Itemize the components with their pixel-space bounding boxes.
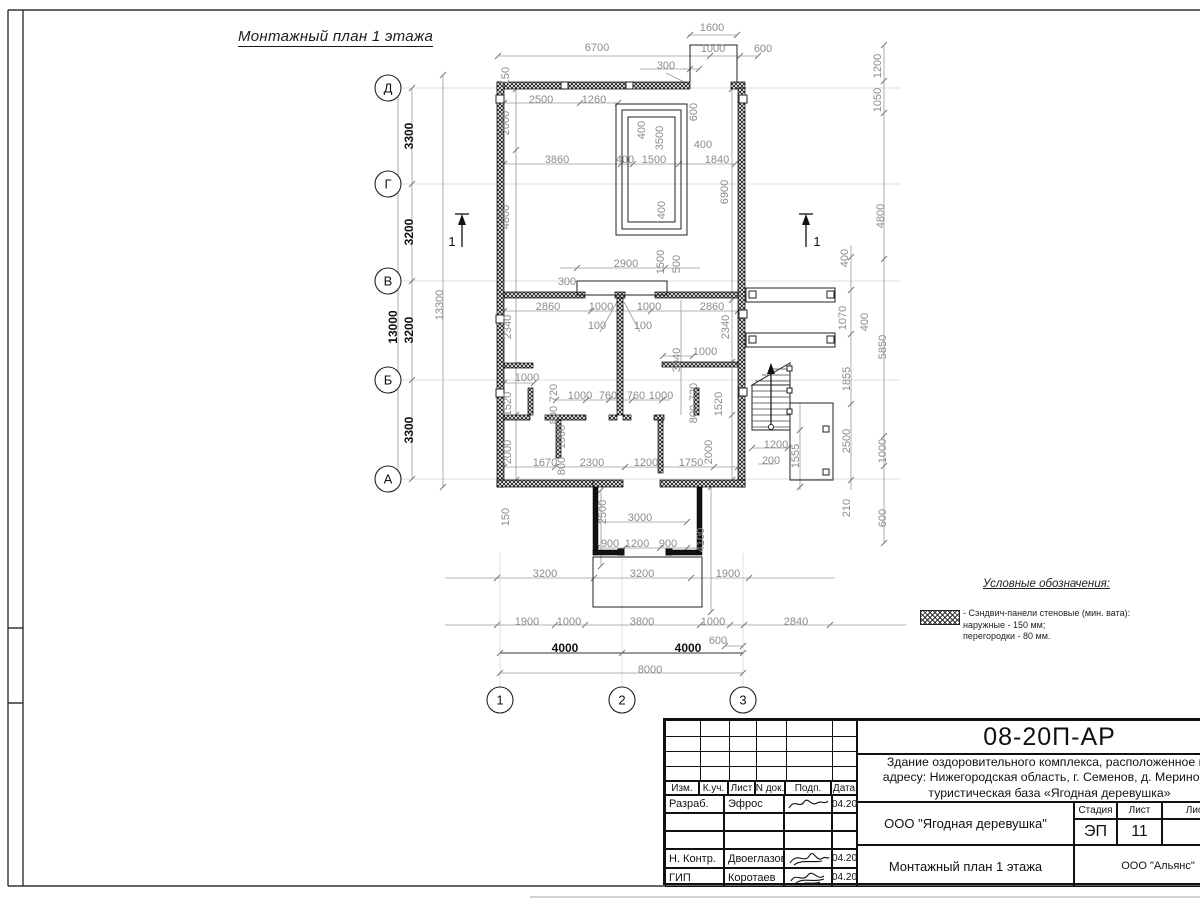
title-block: Изм. К.уч. Лист N док. Подп. Дата Разраб… xyxy=(663,718,1200,885)
signature-scribble xyxy=(786,850,830,867)
dimension-label: 600 xyxy=(709,635,727,647)
legend-item-line2: наружные - 150 мм; xyxy=(963,620,1195,632)
dimension-label: 800 xyxy=(548,406,560,424)
dimension-label: 1000 xyxy=(701,616,725,628)
dimension-label: 3800 xyxy=(630,616,654,628)
axis-bubble-label: 2 xyxy=(618,693,625,708)
signature-scribble xyxy=(786,869,830,886)
dimension-label: 3200 xyxy=(533,568,557,580)
dimension-label: 6900 xyxy=(719,180,731,204)
dimension-label: 1520 xyxy=(713,392,725,416)
dimension-label: 600 xyxy=(688,103,700,121)
dimension-label: 1000 xyxy=(649,390,673,402)
porch-slab xyxy=(593,557,702,607)
signer-date: 04.20 xyxy=(832,795,857,813)
dimension-label: 13300 xyxy=(434,290,446,321)
section-mark-right: 1 xyxy=(799,214,821,249)
signer-name: Эфрос xyxy=(724,795,784,813)
dimension-label: 900 xyxy=(601,538,619,550)
dimension-label: 1200 xyxy=(625,538,649,550)
project-line2: адресу: Нижегородская область, г. Семено… xyxy=(883,770,1200,786)
col-header-data: Дата xyxy=(831,781,857,795)
stove-outline xyxy=(616,104,687,235)
dimension-label: 2500 xyxy=(597,500,609,524)
organization-name: ООО "Ягодная деревушка" xyxy=(857,802,1074,845)
dimension-label: 6700 xyxy=(585,42,609,54)
col-header-kuch: К.уч. xyxy=(699,781,728,795)
sheets-total-value xyxy=(1162,819,1200,845)
dimension-label: 3200 xyxy=(402,218,416,245)
signer-date xyxy=(832,813,857,831)
col-header-podp: Подп. xyxy=(785,781,831,795)
signer-role xyxy=(665,813,724,831)
sheet-label: Лист xyxy=(1117,802,1162,819)
dimension-label: 4000 xyxy=(675,641,702,655)
sheets-total-label: Листов xyxy=(1162,802,1200,819)
signer-role xyxy=(665,831,724,849)
axis-bubble-label: В xyxy=(384,274,393,289)
dimension-label: 13000 xyxy=(386,310,400,344)
dimension-label: 2860 xyxy=(700,301,724,313)
document-number: 08-20П-АР xyxy=(857,720,1200,754)
contractor-name: ООО "Альянс" xyxy=(1074,845,1200,887)
signer-date xyxy=(832,831,857,849)
dimension-label: 150 xyxy=(500,508,512,526)
signature-cell xyxy=(784,795,832,813)
dimension-label: 1555 xyxy=(790,444,802,468)
signature-cell xyxy=(784,868,832,887)
dimension-label: 1500 xyxy=(655,250,667,274)
dimension-label: 1000 xyxy=(637,301,661,313)
dimension-label: 1670 xyxy=(533,457,557,469)
stage-value: ЭП xyxy=(1074,819,1117,845)
dimension-label: 720 xyxy=(688,383,700,401)
dimension-label: 1070 xyxy=(837,306,849,330)
dimension-label: 1600 xyxy=(700,22,724,34)
col-header-ndok: N док. xyxy=(755,781,785,795)
dimension-label: 1000 xyxy=(877,439,889,463)
dimension-label: 200 xyxy=(762,455,780,467)
dimension-label: 1200 xyxy=(634,457,658,469)
dimension-label: 1000 xyxy=(556,425,568,449)
dimension-label: 2300 xyxy=(580,457,604,469)
dimension-label: 300 xyxy=(558,276,576,288)
col-header-izm: Изм. xyxy=(665,781,699,795)
dimension-label: 760 xyxy=(627,390,645,402)
dimension-label: 2840 xyxy=(784,616,808,628)
dimension-label: 1000 xyxy=(515,372,539,384)
dimension-label: 3200 xyxy=(402,316,416,343)
dimension-label: 1000 xyxy=(693,346,717,358)
dimension-label: 1200 xyxy=(764,439,788,451)
dimension-label: 2900 xyxy=(614,258,638,270)
drawing-sheet: 1 1 160067001000600300150250012602000600… xyxy=(0,0,1200,900)
dimension-label: 1855 xyxy=(841,367,853,391)
signer-role: Разраб. xyxy=(665,795,724,813)
signer-name: Коротаев xyxy=(724,868,784,887)
signer-role: ГИП xyxy=(665,868,724,887)
dimension-label: 1000 xyxy=(557,616,581,628)
dimension-label: 3860 xyxy=(545,154,569,166)
project-description: Здание оздоровительного комплекса, распо… xyxy=(857,754,1200,802)
dimension-label: 2340 xyxy=(720,315,732,339)
beam-lower xyxy=(746,333,835,347)
axis-grid-lines xyxy=(401,88,900,687)
signature-cell xyxy=(784,849,832,868)
dimension-label: 1000 xyxy=(701,43,725,55)
dimension-label: 300 xyxy=(657,60,675,72)
dimension-label: 2340 xyxy=(502,315,514,339)
dimension-label: 100 xyxy=(588,320,606,332)
axis-bubble-label: 1 xyxy=(496,693,503,708)
axis-bubble-label: Б xyxy=(384,373,393,388)
sandwich-panel-swatch xyxy=(920,610,960,625)
dimension-label: 4800 xyxy=(875,204,887,228)
signer-name: Двоеглазов xyxy=(724,849,784,868)
dimension-label: 1900 xyxy=(515,616,539,628)
dimension-label: 8000 xyxy=(638,664,662,676)
col-header-list: Лист xyxy=(728,781,755,795)
project-line1: Здание оздоровительного комплекса, распо… xyxy=(887,755,1200,771)
revision-grid xyxy=(665,720,857,781)
dimension-label: 5850 xyxy=(877,335,889,359)
legend-item-line3: перегородки - 80 мм. xyxy=(963,631,1195,643)
dimension-label: 1000 xyxy=(568,390,592,402)
signature-scribble xyxy=(786,796,830,812)
dimension-label: 2860 xyxy=(536,301,560,313)
axis-bubble-label: Д xyxy=(384,81,393,96)
stairs xyxy=(752,363,792,430)
dimension-label: 600 xyxy=(877,509,889,527)
dimension-label: 1840 xyxy=(705,154,729,166)
axis-bubble-label: 3 xyxy=(739,693,746,708)
dimension-label: 720 xyxy=(548,384,560,402)
drawing-title: Монтажный план 1 этажа xyxy=(857,845,1074,887)
dimension-label: 1200 xyxy=(872,54,884,78)
dimension-label: 400 xyxy=(656,201,668,219)
dimension-label: 760 xyxy=(599,390,617,402)
dimension-label: 800 xyxy=(556,457,568,475)
signer-name xyxy=(724,831,784,849)
dimension-label: 1750 xyxy=(679,457,703,469)
section-mark-left: 1 xyxy=(448,214,469,249)
dimension-label: 400 xyxy=(694,139,712,151)
axis-bubble-label: А xyxy=(384,472,393,487)
signer-role: Н. Контр. xyxy=(665,849,724,868)
dimension-label: 100 xyxy=(634,320,652,332)
dimension-label: 1900 xyxy=(716,568,740,580)
legend: Условные обозначения: - Сэндвич-панели с… xyxy=(905,578,1195,643)
dimension-label: 400 xyxy=(859,313,871,331)
svg-text:1: 1 xyxy=(813,234,820,249)
sheet-number: 11 xyxy=(1117,819,1162,845)
axis-bubble-label: Г xyxy=(384,177,391,192)
dimension-label: 1050 xyxy=(872,88,884,112)
dimension-label: 2500 xyxy=(529,94,553,106)
signature-cell xyxy=(784,831,832,849)
dimension-label: 3500 xyxy=(654,126,666,150)
dimension-label: 3200 xyxy=(630,568,654,580)
dimension-label: 3000 xyxy=(628,512,652,524)
dimension-label: 400 xyxy=(839,249,851,267)
dimension-label: 500 xyxy=(671,255,683,273)
dimension-label: 1260 xyxy=(582,94,606,106)
dimension-label: 3300 xyxy=(402,416,416,443)
svg-text:1: 1 xyxy=(448,234,455,249)
signature-cell xyxy=(784,813,832,831)
dimension-label: 600 xyxy=(754,43,772,55)
dimension-label: 1000 xyxy=(589,301,613,313)
plan-title: Монтажный план 1 этажа xyxy=(238,28,433,47)
dimension-label: 2500 xyxy=(841,429,853,453)
dimension-label: 2000 xyxy=(500,111,512,135)
dimension-label: 2000 xyxy=(703,440,715,464)
dimension-label: 2000 xyxy=(502,440,514,464)
beam-upper xyxy=(746,288,835,302)
signer-date: 04.20 xyxy=(832,868,857,887)
dimension-label: 150 xyxy=(500,67,512,85)
dimension-label: 1500 xyxy=(642,154,666,166)
dimension-label: 800 xyxy=(688,405,700,423)
signer-name xyxy=(724,813,784,831)
dimension-label: 4000 xyxy=(552,641,579,655)
legend-heading: Условные обозначения: xyxy=(983,578,1195,590)
dimension-label: 1520 xyxy=(502,392,514,416)
stage-label: Стадия xyxy=(1074,802,1117,819)
dimension-label: 3940 xyxy=(671,348,683,372)
dimension-label: 400 xyxy=(636,121,648,139)
dimension-label: 400 xyxy=(616,154,634,166)
dimension-label: 900 xyxy=(659,538,677,550)
dimension-label: 3300 xyxy=(402,122,416,149)
project-line3: туристическая база «Ягодная деревушка» xyxy=(928,786,1170,802)
dimension-label: 4100 xyxy=(695,528,707,552)
dimension-label: 210 xyxy=(841,499,853,517)
signer-date: 04.20 xyxy=(832,849,857,868)
dimension-label: 4800 xyxy=(500,205,512,229)
legend-item-line1: - Сэндвич-панели стеновые (мин. вата): xyxy=(963,608,1195,620)
